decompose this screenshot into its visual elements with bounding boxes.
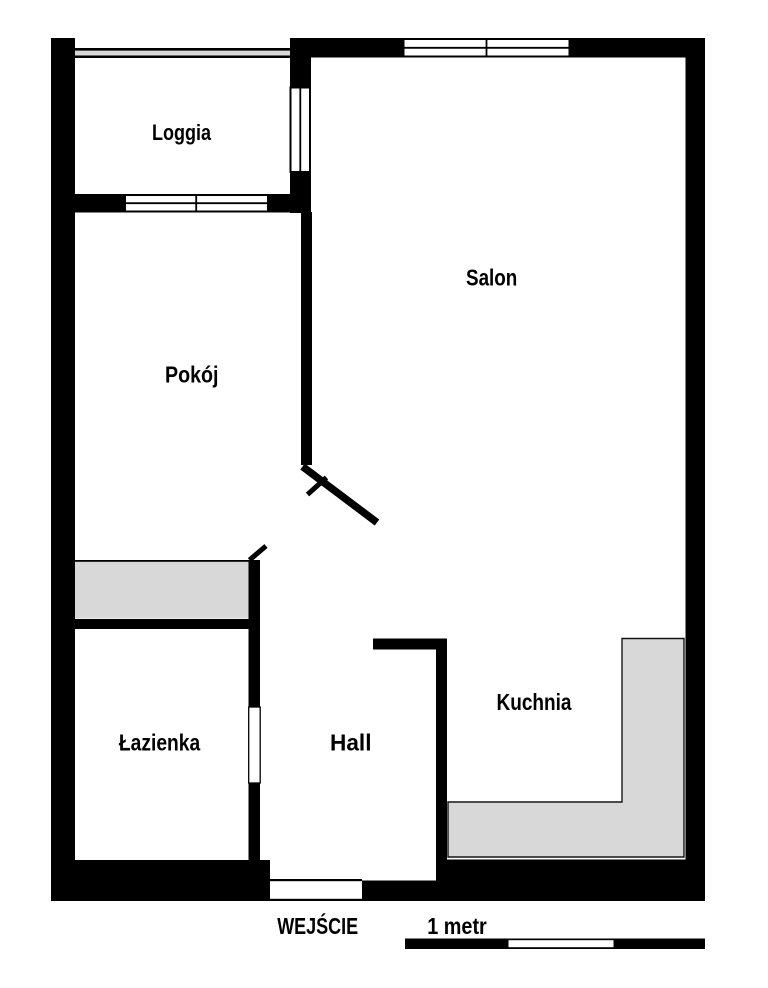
- svg-text:Hall: Hall: [330, 730, 372, 756]
- svg-text:WEJŚCIE: WEJŚCIE: [277, 912, 358, 939]
- svg-text:Łazienka: Łazienka: [119, 730, 201, 756]
- svg-text:Kuchnia: Kuchnia: [497, 689, 573, 715]
- svg-text:1 metr: 1 metr: [427, 913, 487, 939]
- svg-text:Salon: Salon: [466, 264, 517, 290]
- svg-text:Loggia: Loggia: [152, 120, 212, 145]
- svg-text:Pokój: Pokój: [165, 362, 219, 388]
